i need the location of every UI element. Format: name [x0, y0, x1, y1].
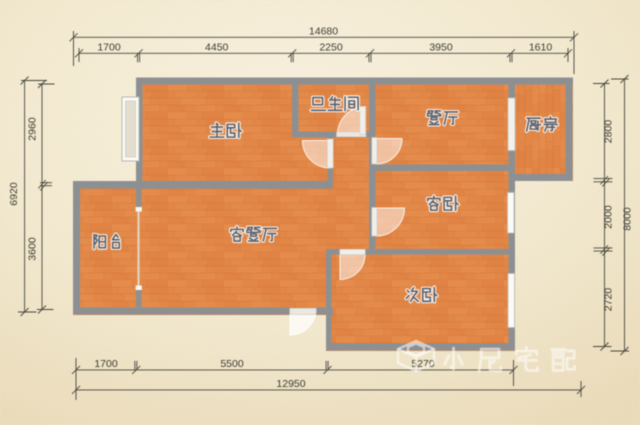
svg-text:2250: 2250 [319, 41, 343, 53]
svg-text:6920: 6920 [8, 182, 20, 206]
svg-text:2960: 2960 [27, 117, 39, 141]
svg-text:1700: 1700 [97, 41, 121, 53]
svg-text:8000: 8000 [622, 207, 634, 231]
svg-text:1610: 1610 [529, 41, 553, 53]
svg-text:5500: 5500 [220, 358, 244, 370]
svg-text:14680: 14680 [309, 25, 338, 37]
svg-text:12950: 12950 [276, 378, 305, 390]
svg-text:3600: 3600 [27, 237, 39, 261]
svg-text:2000: 2000 [603, 205, 615, 229]
svg-text:3950: 3950 [429, 41, 453, 53]
svg-text:1700: 1700 [94, 358, 118, 370]
svg-text:2800: 2800 [603, 120, 615, 144]
svg-text:4450: 4450 [205, 41, 229, 53]
svg-text:2720: 2720 [603, 288, 615, 312]
